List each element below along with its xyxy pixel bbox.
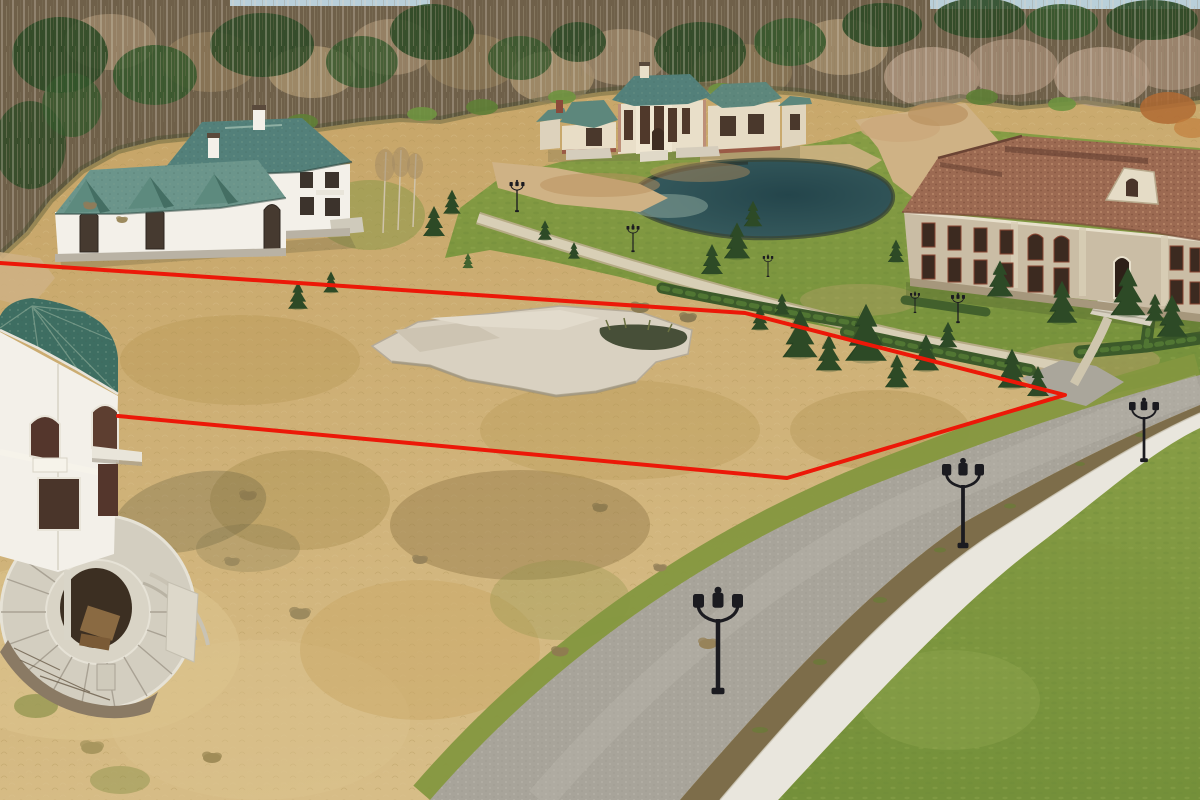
scene-canvas (0, 0, 1200, 800)
stair-side-wall (166, 582, 198, 662)
cm-chimney (556, 100, 563, 113)
aerial-photo (0, 0, 1200, 800)
cm-right-wing-wall (708, 102, 780, 152)
stair-pillar (97, 664, 115, 690)
left-house-balcony (316, 190, 344, 195)
stair-column (64, 570, 71, 640)
rm-pediment-window (1126, 179, 1138, 198)
cm-annex-left (540, 118, 560, 150)
